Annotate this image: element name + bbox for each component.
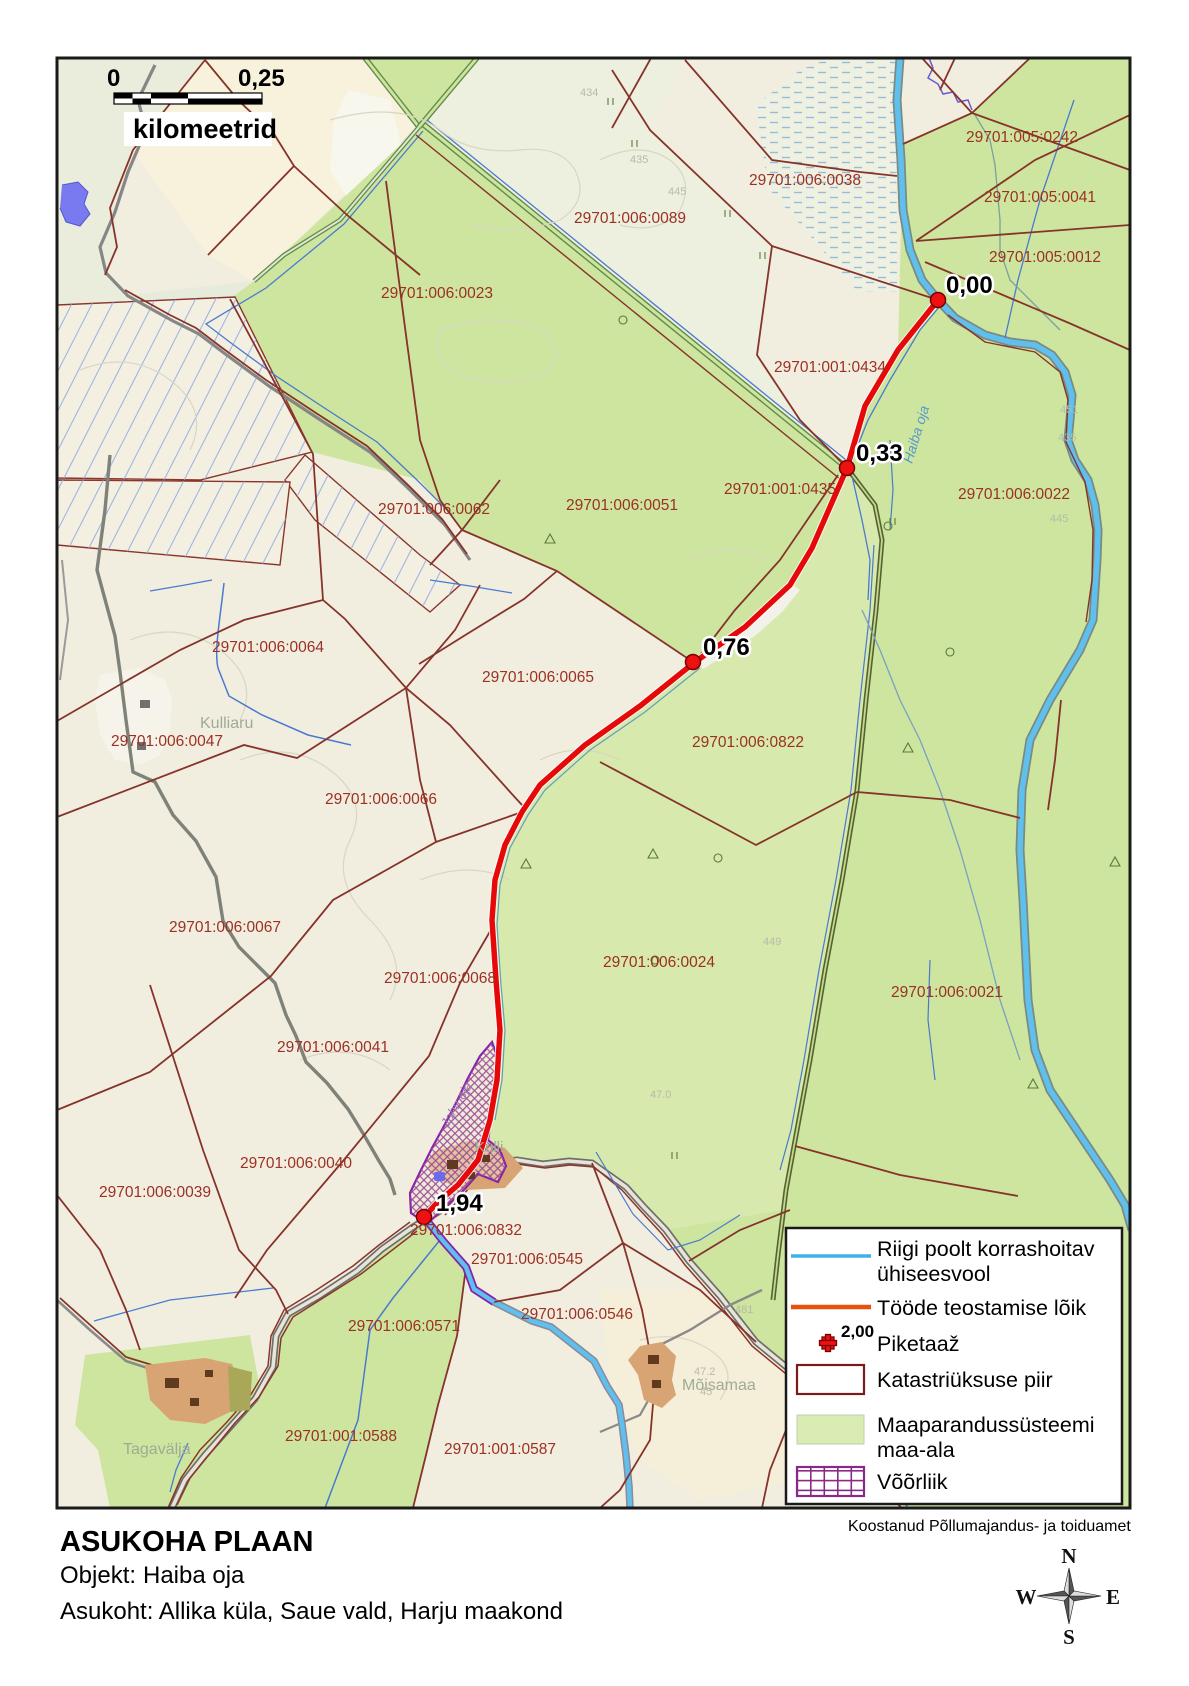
svg-text:Koostanud Põllumajandus- ja to: Koostanud Põllumajandus- ja toiduamet (848, 1518, 1131, 1535)
svg-text:W: W (1016, 1585, 1037, 1609)
svg-text:435: 435 (630, 154, 648, 166)
svg-text:47.2: 47.2 (694, 1366, 715, 1378)
svg-text:29701:006:0047: 29701:006:0047 (111, 733, 223, 750)
svg-text:0,25: 0,25 (238, 65, 285, 92)
svg-text:0: 0 (107, 65, 120, 92)
svg-text:Võõrliik: Võõrliik (877, 1470, 948, 1494)
svg-text:29701:006:0064: 29701:006:0064 (212, 639, 324, 656)
svg-text:451: 451 (1060, 404, 1078, 416)
svg-text:45: 45 (700, 1386, 712, 1398)
svg-text:Mõisamaa: Mõisamaa (682, 1377, 756, 1394)
svg-text:29701:006:0066: 29701:006:0066 (325, 791, 437, 808)
svg-text:1,94: 1,94 (436, 1190, 483, 1217)
svg-text:29701:006:0571: 29701:006:0571 (348, 1318, 460, 1335)
svg-text:29701:006:0089: 29701:006:0089 (574, 210, 686, 227)
svg-text:0,33: 0,33 (856, 440, 903, 467)
svg-text:0,00: 0,00 (946, 272, 993, 299)
svg-text:29701:006:0051: 29701:006:0051 (566, 497, 678, 514)
svg-text:Objekt:: Objekt: (60, 1562, 136, 1589)
svg-text:29701:005:0242: 29701:005:0242 (966, 129, 1078, 146)
svg-text:47.0: 47.0 (650, 1089, 671, 1101)
svg-text:29701:006:0022: 29701:006:0022 (958, 486, 1070, 503)
svg-text:29701:006:0021: 29701:006:0021 (891, 984, 1003, 1001)
svg-text:Tagavälja: Tagavälja (123, 1441, 191, 1458)
svg-text:E: E (1106, 1585, 1120, 1609)
svg-text:Asukoht: Allika küla, Saue val: Asukoht: Allika küla, Saue vald, Harju m… (60, 1598, 563, 1625)
svg-text:0,76: 0,76 (703, 634, 750, 661)
svg-text:29701:006:0041: 29701:006:0041 (277, 1039, 389, 1056)
svg-text:29701:001:0435: 29701:001:0435 (724, 481, 836, 498)
svg-text:maa-ala: maa-ala (877, 1438, 955, 1462)
svg-text:29701:006:0024: 29701:006:0024 (603, 954, 715, 971)
svg-text:kilomeetrid: kilomeetrid (133, 114, 277, 144)
svg-text:449: 449 (763, 936, 781, 948)
svg-text:29701:006:0067: 29701:006:0067 (169, 919, 281, 936)
svg-text:481: 481 (735, 1304, 753, 1316)
svg-text:29701:006:0065: 29701:006:0065 (482, 669, 594, 686)
svg-text:29701:005:0041: 29701:005:0041 (984, 189, 1096, 206)
svg-text:445: 445 (668, 186, 686, 198)
svg-text:Piketaaž: Piketaaž (877, 1332, 959, 1356)
svg-text:29701:006:0068: 29701:006:0068 (384, 970, 496, 987)
svg-text:ASUKOHA PLAAN: ASUKOHA PLAAN (60, 1526, 313, 1558)
svg-text:Haiba oja: Haiba oja (143, 1562, 245, 1589)
svg-text:435: 435 (1058, 432, 1076, 444)
svg-text:29701:006:0546: 29701:006:0546 (521, 1306, 633, 1323)
svg-text:29701:001:0434: 29701:001:0434 (774, 359, 886, 376)
svg-text:S: S (1063, 1625, 1075, 1649)
svg-text:29701:006:0039: 29701:006:0039 (99, 1184, 211, 1201)
svg-text:29701:005:0012: 29701:005:0012 (989, 249, 1101, 266)
svg-text:29701:001:0588: 29701:001:0588 (285, 1428, 397, 1445)
svg-text:Tööde teostamise lõik: Tööde teostamise lõik (877, 1296, 1086, 1320)
svg-text:ühiseesvool: ühiseesvool (877, 1262, 991, 1286)
svg-text:Kulliaru: Kulliaru (200, 715, 253, 732)
svg-text:29701:006:0062: 29701:006:0062 (378, 501, 490, 518)
svg-text:Kulli: Kulli (475, 1139, 503, 1156)
svg-text:N: N (1061, 1544, 1076, 1568)
svg-text:Maaparandussüsteemi: Maaparandussüsteemi (877, 1413, 1095, 1437)
svg-text:29701:001:0587: 29701:001:0587 (444, 1441, 556, 1458)
svg-text:29701:006:0038: 29701:006:0038 (749, 172, 861, 189)
svg-text:29701:006:0832: 29701:006:0832 (410, 1222, 522, 1239)
svg-text:Riigi poolt korrashoitav: Riigi poolt korrashoitav (877, 1237, 1095, 1261)
svg-text:Katastriüksuse piir: Katastriüksuse piir (877, 1368, 1053, 1392)
svg-text:29701:006:0545: 29701:006:0545 (471, 1251, 583, 1268)
svg-text:29701:006:0040: 29701:006:0040 (240, 1155, 352, 1172)
svg-text:2,00: 2,00 (841, 1322, 874, 1341)
svg-text:29701:006:0023: 29701:006:0023 (381, 285, 493, 302)
svg-text:29701:006:0822: 29701:006:0822 (692, 734, 804, 751)
svg-text:434: 434 (580, 87, 598, 99)
svg-text:445: 445 (1050, 513, 1068, 525)
